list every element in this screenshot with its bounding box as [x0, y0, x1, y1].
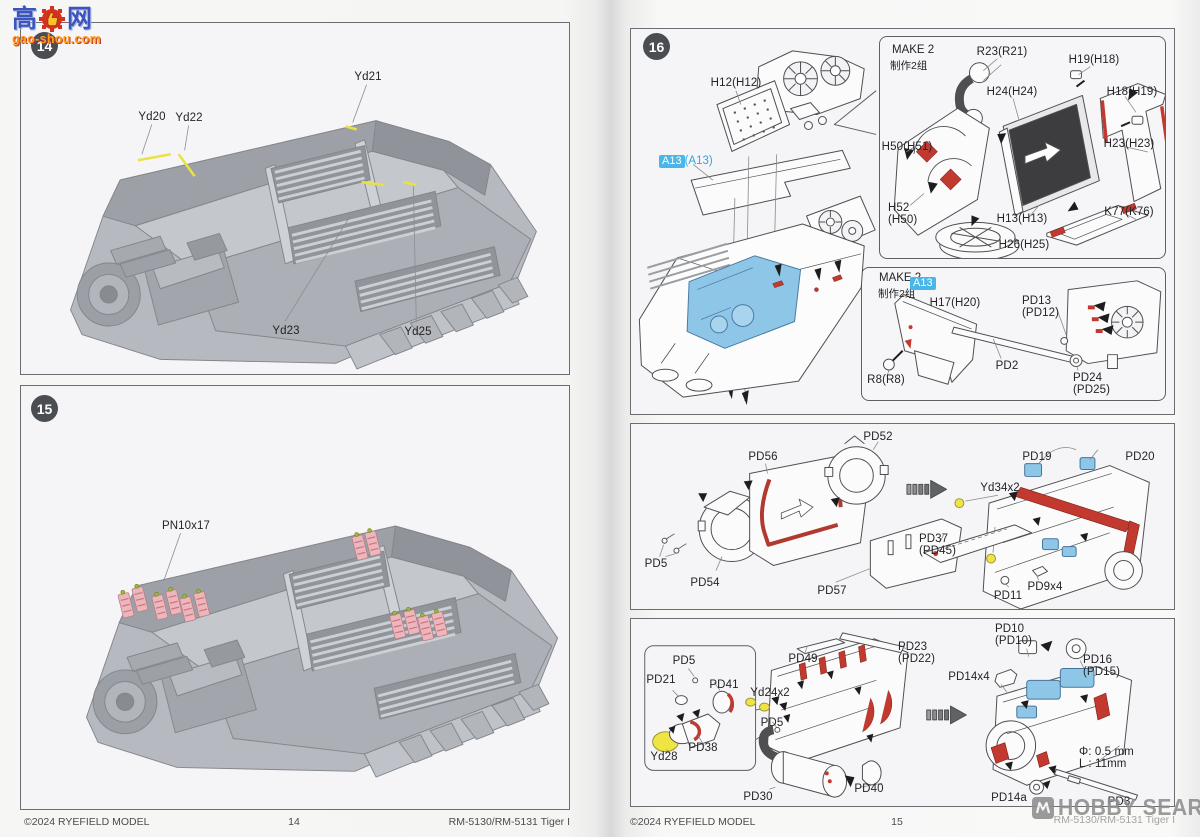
footer-right-page-number: 15	[891, 816, 903, 828]
a13-part-label: A13(A13)	[659, 151, 713, 169]
part-label-pd20: PD20	[1125, 451, 1154, 463]
part-label-h24: H24(H24)	[987, 86, 1038, 98]
make2-firewall-box: MAKE 2 制作2组 A13 H17(H20) R8(R8) PD13 (PD…	[861, 267, 1166, 401]
part-label-pd37-line1: PD37	[919, 533, 948, 545]
step-14-panel: 14 Yd20 Yd22 Yd21 Yd23 Yd25	[20, 22, 570, 375]
part-label-pd10-line1: PD10	[995, 623, 1024, 635]
step-15-number: 15	[31, 395, 58, 422]
drill-diameter-note: Φ: 0.5 mm	[1079, 746, 1134, 758]
part-label-r8: R8(R8)	[867, 374, 905, 386]
part-label-pd57: PD57	[817, 585, 846, 597]
part-label-h52-line1: H52	[888, 202, 909, 214]
gaoshou-cn-right: 网	[67, 6, 92, 32]
part-label-pd30: PD30	[743, 791, 772, 803]
part-label-yd34: Yd34x2	[980, 482, 1020, 494]
footer-left-product-code: RM-5130/RM-5131 Tiger I	[449, 816, 570, 828]
part-label-pd56: PD56	[748, 451, 777, 463]
part-label-pd54: PD54	[690, 577, 719, 589]
part-label-pd5: PD5	[645, 558, 668, 570]
part-label-pd14a: PD14a	[991, 792, 1027, 804]
hull-lineart	[639, 224, 864, 397]
gaoshou-site-text: gao-shou.com	[12, 32, 122, 46]
h12-grate-part	[717, 81, 790, 152]
part-label-pd37-line2: (PD45)	[919, 545, 956, 557]
a13-badge-box2: A13	[910, 273, 936, 291]
step-16-panel: 16	[630, 28, 1175, 415]
drill-length-note: L : 11mm	[1079, 758, 1126, 770]
part-label-h19: H19(H18)	[1069, 54, 1120, 66]
a13-plate-part	[691, 150, 850, 215]
firewall-assembly-part	[1056, 281, 1160, 371]
part-label-pd40: PD40	[854, 783, 883, 795]
part-label-h18: H18(H19)	[1107, 86, 1158, 98]
engine-assembly-b-right	[986, 639, 1137, 800]
make2-title: MAKE 2	[892, 44, 934, 56]
part-label-yd28: Yd28	[650, 751, 677, 763]
part-label-yd21: Yd21	[354, 71, 381, 83]
instruction-sheet: 高 网 gao-shou.com 14	[0, 0, 1200, 837]
footer-right-copyright: ©2024 RYEFIELD MODEL	[630, 816, 755, 828]
step-16-engine-panel-a: PD52 PD56 PD19 PD20 Yd34x2 PD37 (PD45) P…	[630, 423, 1175, 610]
part-label-h26: H26(H25)	[999, 239, 1050, 251]
part-label-r23: R23(R21)	[977, 46, 1028, 58]
part-label-h23: H23(H23)	[1104, 138, 1155, 150]
part-label-pd16-line1: PD16	[1083, 654, 1112, 666]
part-label-yd25: Yd25	[404, 326, 431, 338]
hobbysearch-watermark: HOBBY SEARCH	[1032, 794, 1200, 821]
part-label-pd41: PD41	[709, 679, 738, 691]
part-label-yd24: Yd24x2	[750, 687, 790, 699]
part-label-h50: H50(H51)	[882, 141, 933, 153]
step-15-panel: 15 PN10x17	[20, 385, 570, 810]
part-label-pd13-line2: (PD12)	[1022, 307, 1059, 319]
part-label-pd23-line1: PD23	[898, 641, 927, 653]
a13-badge: A13	[910, 277, 936, 290]
hull-render-step15-illustration	[21, 386, 569, 809]
footer-left-copyright: ©2024 RYEFIELD MODEL	[24, 816, 149, 828]
part-label-pd10-line2: (PD10)	[995, 635, 1032, 647]
part-label-pd13-line1: PD13	[1022, 295, 1051, 307]
part-label-pd5-inset: PD5	[673, 655, 696, 667]
part-label-pd21: PD21	[646, 674, 675, 686]
part-label-pd2: PD2	[996, 360, 1019, 372]
part-label-pd49: PD49	[788, 653, 817, 665]
make2-subtitle: 制作2组	[890, 58, 927, 73]
part-label-pd16-line2: (PD15)	[1083, 666, 1120, 678]
part-label-pd24-line1: PD24	[1073, 372, 1102, 384]
step-16-engine-panel-b: PD5 PD21 PD41 PD38 Yd28 PD49 PD23 (PD22)…	[630, 618, 1175, 807]
part-label-pd38: PD38	[688, 742, 717, 754]
part-label-k77: K77(K76)	[1104, 206, 1153, 218]
part-label-yd23: Yd23	[272, 325, 299, 337]
hull-render-step14-illustration	[21, 23, 569, 374]
part-label-h13: H13(H13)	[997, 213, 1048, 225]
hobbysearch-text: HOBBY SEARCH	[1058, 794, 1200, 821]
gaoshou-cn-left: 高	[12, 6, 37, 32]
part-label-yd22: Yd22	[175, 112, 202, 124]
a13-ref: (A13)	[685, 155, 713, 167]
part-label-h17: H17(H20)	[930, 297, 981, 309]
part-label-pd19: PD19	[1022, 451, 1051, 463]
part-label-pd14x4: PD14x4	[948, 671, 990, 683]
gaoshou-gear-icon	[39, 6, 65, 32]
part-label-pd5: PD5	[761, 717, 784, 729]
part-label-pn10x17: PN10x17	[162, 520, 210, 532]
footer-left-page-number: 14	[288, 816, 300, 828]
part-label-h12: H12(H12)	[711, 77, 762, 89]
part-label-pd23-line2: (PD22)	[898, 653, 935, 665]
part-label-pd9: PD9x4	[1027, 581, 1062, 593]
part-label-pd52: PD52	[863, 431, 892, 443]
part-label-yd20: Yd20	[138, 111, 165, 123]
hobbysearch-logo-icon	[1032, 797, 1054, 819]
gaoshou-watermark: 高 网 gao-shou.com	[12, 6, 122, 46]
step-16-number: 16	[643, 33, 670, 60]
part-label-h52-line2: (H50)	[888, 214, 917, 226]
part-label-pd11: PD11	[994, 590, 1022, 602]
part-label-pd24-line2: (PD25)	[1073, 384, 1110, 396]
make2-radiator-box: MAKE 2 制作2组 R23(R21) H19(H18) H18(H19) H…	[879, 36, 1166, 259]
a13-badge: A13	[659, 155, 685, 168]
